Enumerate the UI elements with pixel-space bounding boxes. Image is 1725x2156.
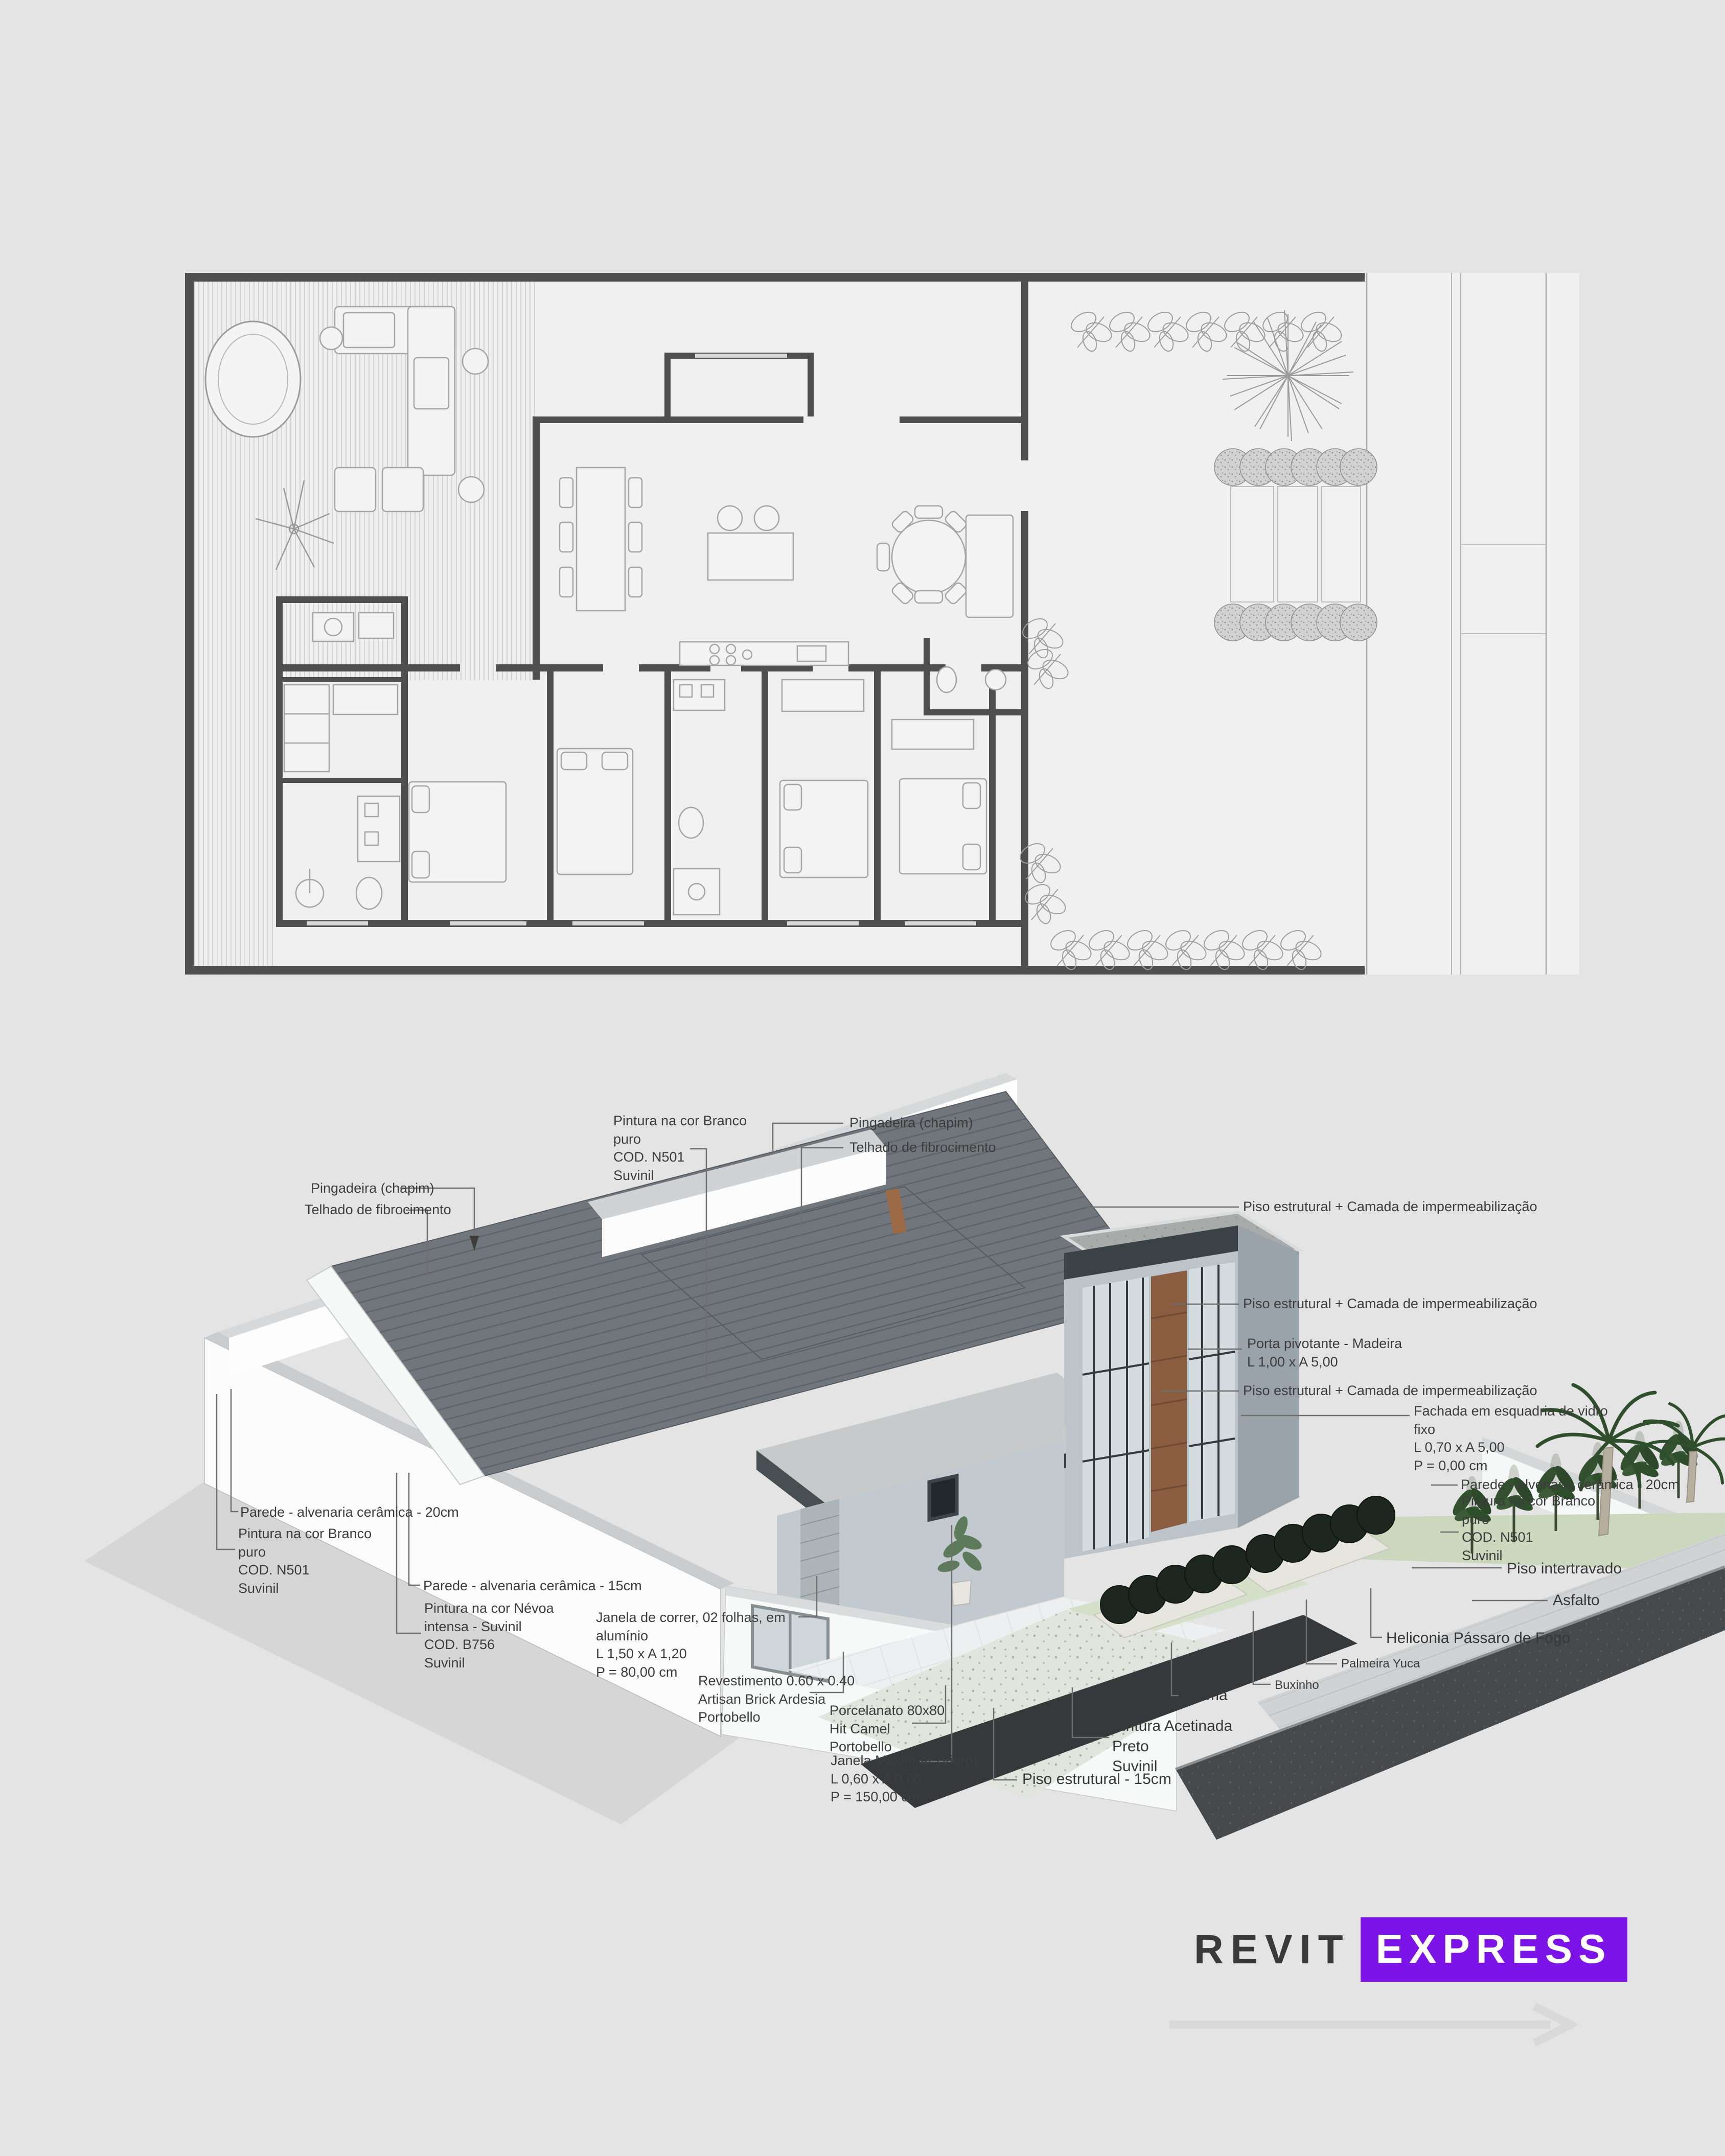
annotation-piso-imp-2: Piso estrutural + Camada de impermeabili…: [1243, 1295, 1537, 1313]
annotation-pingadeira-left: Pingadeira (chapim): [311, 1179, 434, 1198]
glass-facade-right: [1189, 1262, 1235, 1522]
drawing-scene: [0, 0, 1725, 2156]
annotation-palmeira-yuca: Palmeira Yuca: [1341, 1656, 1420, 1672]
arrow-right-icon: [1169, 2006, 1570, 2043]
annotation-pintura-acetinada: Pintura Acetinada Preto Suvinil: [1112, 1716, 1232, 1777]
annotation-telhado-top: Telhado de fibrocimento: [849, 1139, 996, 1157]
annotation-buxinho: Buxinho: [1275, 1677, 1319, 1694]
annotation-pintura-nevoa: Pintura na cor Névoa intensa - Suvinil C…: [424, 1599, 554, 1673]
logo-revit-text: REVIT: [1194, 1926, 1350, 1973]
logo-express-badge: EXPRESS: [1361, 1917, 1627, 1982]
asphalt-road: [1176, 1567, 1725, 1840]
annotation-pintura-branco-top: Pintura na cor Branco puro COD. N501 Suv…: [613, 1112, 747, 1185]
annotation-pingadeira-top: Pingadeira (chapim): [849, 1114, 973, 1132]
annotation-parede15: Parede - alvenaria cerâmica - 15cm: [423, 1577, 642, 1595]
sheet: Pingadeira (chapim) Telhado de fibrocime…: [0, 0, 1725, 2156]
annotation-heliconia: Heliconia Pássaro de Fogo: [1386, 1628, 1570, 1649]
annotation-piso-imp-1: Piso estrutural + Camada de impermeabili…: [1243, 1198, 1537, 1216]
maxim-ar-window: [929, 1476, 957, 1520]
floor-plan: [185, 273, 1579, 975]
annotation-parede20-right: Parede - alvenaria cerâmica - 20cm: [1461, 1476, 1680, 1494]
plan-pool: [205, 321, 301, 437]
annotation-fachada: Fachada em esquadria de vidro fixo L 0,7…: [1414, 1402, 1608, 1475]
annotation-janela-correr: Janela de correr, 02 folhas, em alumínio…: [596, 1609, 786, 1682]
annotation-grama: Grama: [1181, 1685, 1228, 1706]
revit-express-logo: REVIT EXPRESS: [1194, 1917, 1627, 1982]
tower-side-wall: [1238, 1225, 1299, 1528]
pivot-door-wood: [1151, 1270, 1187, 1532]
annotation-pintura-branco-left: Pintura na cor Branco puro COD. N501 Suv…: [238, 1525, 372, 1598]
annotation-porta-pivotante: Porta pivotante - Madeira L 1,00 x A 5,0…: [1247, 1335, 1402, 1371]
annotation-telhado-left: Telhado de fibrocimento: [305, 1201, 451, 1219]
annotation-piso-imp-3: Piso estrutural + Camada de impermeabili…: [1243, 1382, 1537, 1400]
annotation-janela-maxim: Janela Maxim-ar (Vidro) L 0,60 x A 0,60 …: [831, 1752, 978, 1806]
plan-hedge-balls: [1214, 449, 1377, 641]
annotation-piso-intertravado: Piso intertravado: [1507, 1559, 1622, 1579]
annotation-porcelanato: Porcelanato 80x80 Hit Camel Portobello: [830, 1702, 945, 1756]
glass-facade-left: [1083, 1277, 1149, 1551]
annotation-asfalto: Asfalto: [1553, 1590, 1600, 1611]
annotation-pintura-branco-right: Pintura na cor Branco puro COD. N501 Suv…: [1462, 1492, 1595, 1565]
annotation-parede20-left: Parede - alvenaria cerâmica - 20cm: [240, 1503, 459, 1522]
